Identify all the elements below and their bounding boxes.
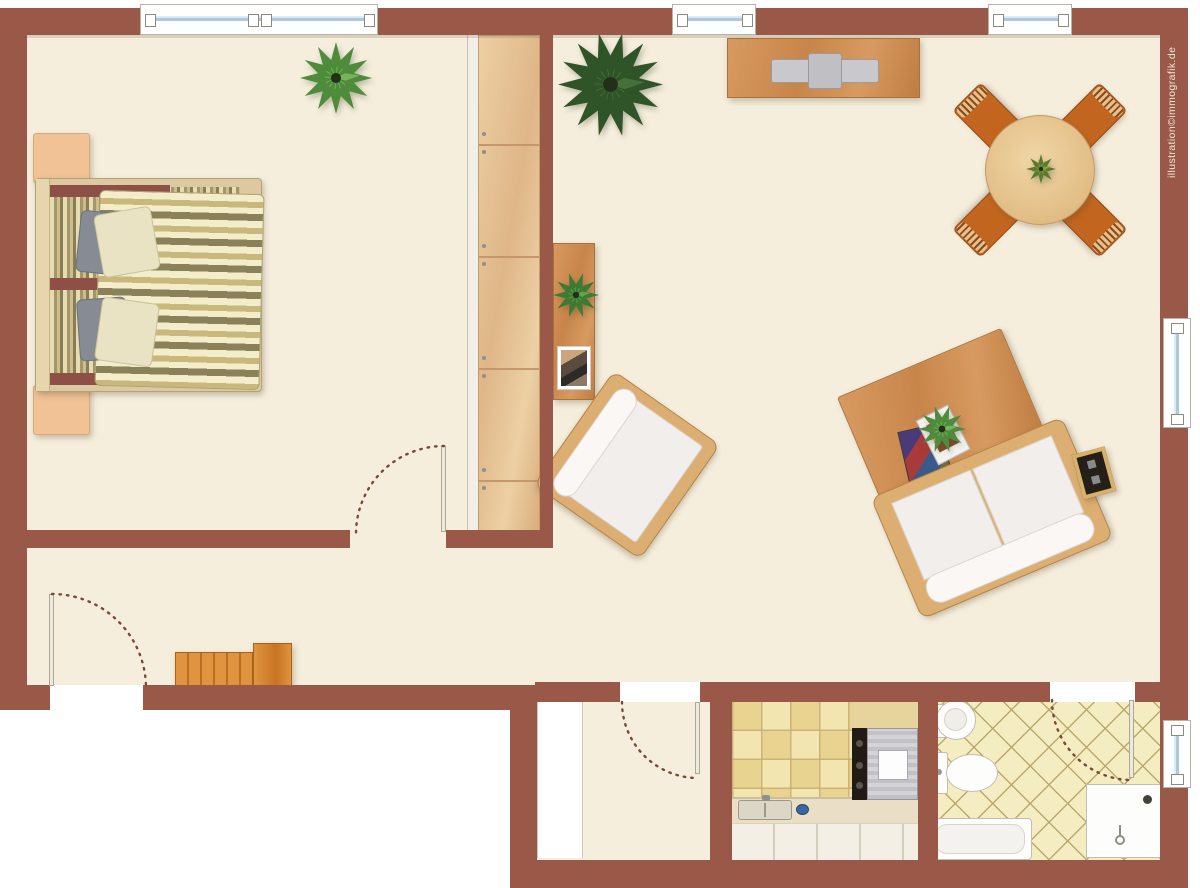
sideboard <box>727 38 920 98</box>
wardrobe-knob <box>482 244 486 248</box>
window-living-1 <box>672 4 756 35</box>
window-living-right <box>1163 318 1191 428</box>
pillow <box>94 296 160 367</box>
hallway-cabinet <box>253 643 292 686</box>
bedroom-door <box>441 446 446 532</box>
kitchen-tiles <box>732 702 852 800</box>
vestibule-door <box>695 702 700 774</box>
window-bathroom <box>1163 720 1191 788</box>
burner <box>856 740 863 747</box>
wall-bedroom-living <box>540 35 553 540</box>
cooktop <box>852 728 867 800</box>
hallway-dresser <box>175 652 253 686</box>
wardrobe-divider <box>479 368 539 370</box>
window-handle <box>1171 725 1184 736</box>
wall-bedroom-hallway <box>27 530 350 548</box>
window-handle <box>993 14 1004 27</box>
window-handle <box>261 14 272 27</box>
stereo-knob <box>1087 459 1097 469</box>
window-living-2 <box>988 4 1072 35</box>
wardrobe-knob <box>482 486 486 490</box>
wall-shadow <box>552 35 1160 38</box>
oven <box>867 728 918 800</box>
wall-interior-south <box>700 682 1050 702</box>
wardrobe-divider <box>479 144 539 146</box>
washbasin-bowl <box>944 708 967 731</box>
wall-interior-south <box>1135 682 1160 702</box>
window-handle <box>1171 414 1184 425</box>
shower-hose <box>1119 825 1121 837</box>
wall-bedroom-hallway <box>446 530 553 548</box>
washbasin <box>936 700 976 740</box>
stereo-knob <box>1091 475 1101 485</box>
sink <box>738 800 792 820</box>
watermark-text: illustration©immografik.de <box>1166 18 1178 178</box>
potted-plant <box>300 42 372 114</box>
wall-shadow <box>27 35 540 38</box>
shower <box>1086 784 1162 858</box>
wardrobe-knob <box>482 262 486 266</box>
potted-plant <box>918 405 966 453</box>
wardrobe-divider <box>479 256 539 258</box>
burner <box>856 782 863 789</box>
wall-left <box>0 8 27 710</box>
bathtub <box>928 818 1032 860</box>
wall-vestibule-left <box>510 685 537 888</box>
window-handle <box>1058 14 1069 27</box>
wall-hallway-bottom <box>0 685 50 710</box>
wardrobe-divider <box>479 480 539 482</box>
wardrobe-knob <box>482 468 486 472</box>
potted-plant <box>1026 154 1056 184</box>
framed-photo <box>557 346 591 390</box>
floor-plan: illustration©immografik.de <box>0 0 1200 888</box>
tv-stand <box>808 53 842 89</box>
window-handle <box>145 14 156 27</box>
faucet <box>762 795 770 801</box>
console-table <box>553 243 595 400</box>
kitchen-cabinets <box>732 823 918 860</box>
window-bedroom <box>140 4 378 35</box>
toilet-bowl <box>946 754 998 792</box>
wall-hallway-bottom <box>143 685 510 710</box>
window-handle <box>1171 323 1184 334</box>
window-handle <box>364 14 375 27</box>
wall-vestibule-kitchen <box>710 682 732 888</box>
kettle <box>796 804 809 815</box>
window-handle <box>677 14 688 27</box>
potted-plant <box>558 32 663 137</box>
photo-image <box>561 350 587 386</box>
burner <box>856 762 863 769</box>
bathroom-door <box>1129 700 1134 778</box>
window-handle <box>248 14 259 27</box>
entrance-door <box>49 594 54 686</box>
wardrobe-knob <box>482 150 486 154</box>
oven-door <box>878 750 908 780</box>
wardrobe-knob <box>482 374 486 378</box>
nightstand <box>33 133 90 183</box>
exterior-notch <box>537 700 583 858</box>
pillow <box>93 205 161 278</box>
wall-kitchen-bathroom <box>918 682 938 860</box>
wardrobe <box>478 35 540 533</box>
bed-headboard <box>36 179 50 391</box>
nightstand <box>33 385 90 435</box>
wall-bottom <box>510 860 1188 888</box>
shower-drain <box>1143 795 1152 804</box>
potted-plant <box>553 272 599 318</box>
window-handle <box>1171 774 1184 785</box>
wall-interior-south <box>535 682 620 702</box>
wardrobe-door-track <box>467 35 478 533</box>
wardrobe-knob <box>482 356 486 360</box>
wardrobe-knob <box>482 132 486 136</box>
bathtub-basin <box>935 824 1025 854</box>
window-handle <box>742 14 753 27</box>
